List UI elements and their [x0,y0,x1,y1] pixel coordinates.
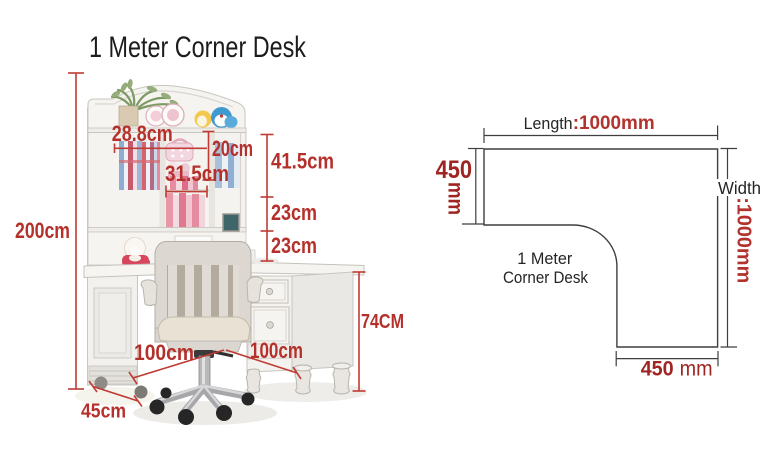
svg-text:1 Meter Corner Desk: 1 Meter Corner Desk [89,31,307,64]
svg-text:74CM: 74CM [361,311,404,333]
svg-text:mm: mm [444,182,467,215]
svg-text:1 Meter: 1 Meter [517,250,572,268]
svg-text:Length: Length [524,114,573,133]
svg-text::1000mm: :1000mm [733,197,755,283]
svg-text:100cm: 100cm [134,340,194,365]
svg-text:450: 450 [641,358,674,381]
svg-text:23cm: 23cm [271,233,317,258]
svg-text:41.5cm: 41.5cm [271,149,334,174]
svg-text:450: 450 [436,156,473,184]
svg-text::1000mm: :1000mm [573,113,655,134]
svg-text:28.8cm: 28.8cm [112,121,173,146]
svg-text:100cm: 100cm [250,338,303,363]
svg-text:Width: Width [718,178,761,198]
svg-text:20cm: 20cm [212,136,253,161]
svg-text:200cm: 200cm [15,218,70,243]
svg-text:Corner Desk: Corner Desk [503,269,589,287]
svg-text:31.5cm: 31.5cm [165,161,229,186]
svg-text:mm: mm [680,358,713,381]
svg-text:23cm: 23cm [271,200,317,225]
svg-text:45cm: 45cm [81,401,126,423]
